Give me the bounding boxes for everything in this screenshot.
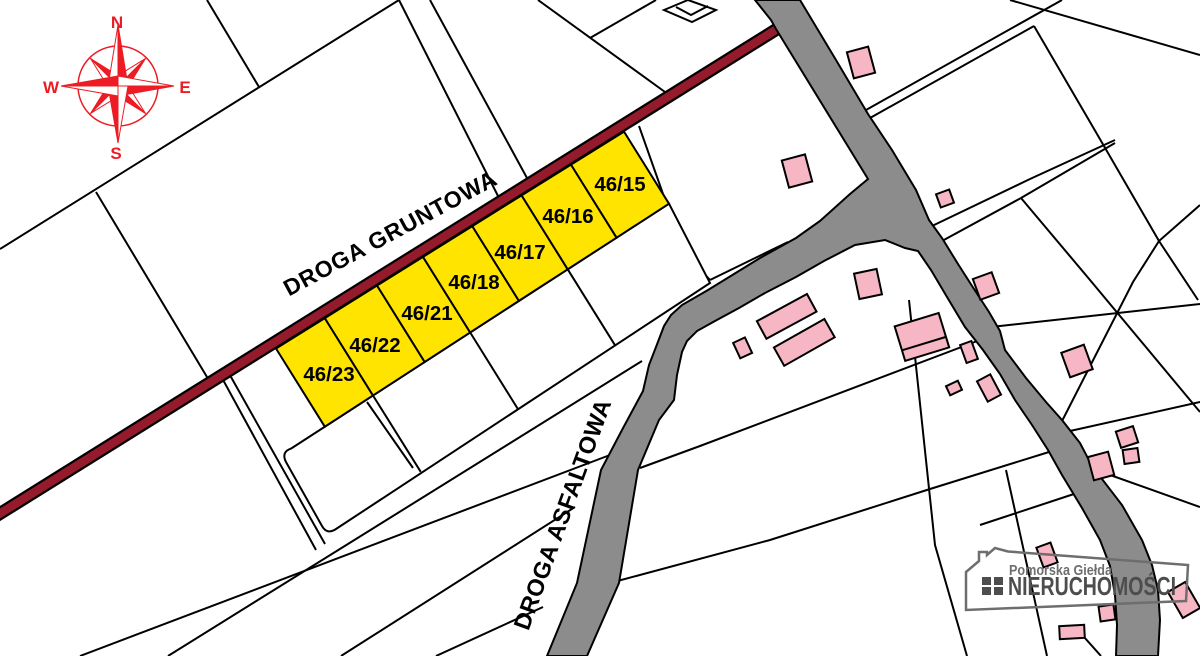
svg-text:46/17: 46/17 (494, 241, 545, 264)
svg-text:46/15: 46/15 (594, 173, 645, 196)
svg-text:46/22: 46/22 (349, 334, 400, 357)
svg-text:46/16: 46/16 (542, 205, 593, 228)
svg-text:46/21: 46/21 (401, 302, 452, 325)
svg-text:NIERUCHOMOŚCI: NIERUCHOMOŚCI (1008, 571, 1176, 601)
svg-text:46/18: 46/18 (448, 271, 499, 294)
svg-text:E: E (179, 78, 190, 97)
svg-text:S: S (110, 144, 121, 163)
svg-text:W: W (43, 78, 60, 97)
svg-text:N: N (111, 13, 123, 32)
svg-text:46/23: 46/23 (303, 363, 354, 386)
